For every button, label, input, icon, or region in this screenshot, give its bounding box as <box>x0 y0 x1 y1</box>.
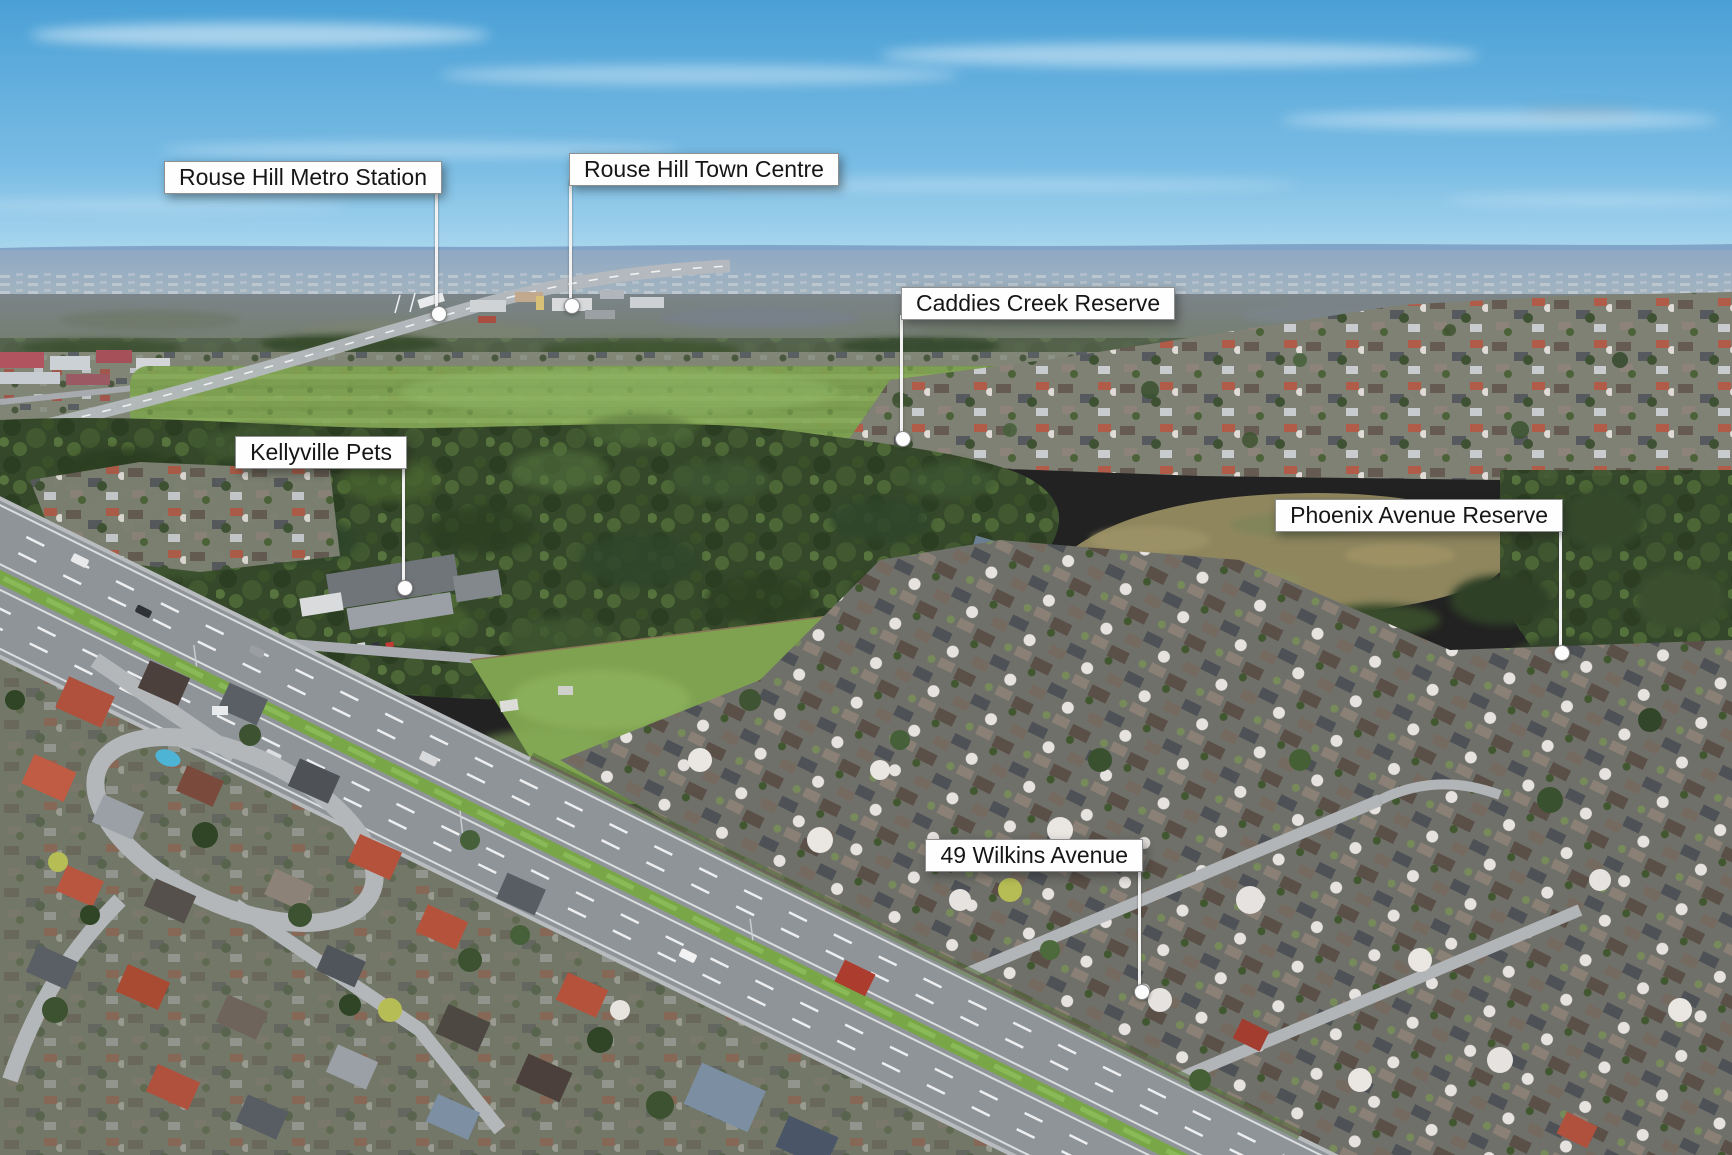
label-kellyville-pets: Kellyville Pets <box>235 436 407 469</box>
leader-line <box>900 315 903 438</box>
leader-dot <box>895 431 911 447</box>
aerial-photo: Rouse Hill Metro Station Rouse Hill Town… <box>0 0 1732 1155</box>
caravan <box>212 706 228 715</box>
label-caddies-creek-reserve: Caddies Creek Reserve <box>901 287 1175 320</box>
leader-line <box>1138 867 1141 991</box>
yellow-tree <box>378 998 402 1022</box>
leader-line <box>402 462 405 587</box>
leader-dot <box>1134 984 1150 1000</box>
distant-city-flecks <box>0 270 1732 294</box>
field-highlight <box>400 368 840 416</box>
leader-line <box>569 181 572 305</box>
shed <box>558 686 573 695</box>
label-49-wilkins-avenue: 49 Wilkins Avenue <box>925 839 1143 872</box>
leader-dot <box>1554 645 1570 661</box>
leader-dot <box>564 298 580 314</box>
yellow-tree <box>48 852 68 872</box>
label-phoenix-avenue-reserve: Phoenix Avenue Reserve <box>1275 499 1563 532</box>
blossom-tree <box>610 1000 630 1020</box>
leader-line <box>1559 526 1562 652</box>
leader-line <box>435 190 438 313</box>
leader-dot <box>431 306 447 322</box>
label-rouse-hill-metro-station: Rouse Hill Metro Station <box>164 161 442 194</box>
yellow-tree <box>998 878 1022 902</box>
label-rouse-hill-town-centre: Rouse Hill Town Centre <box>569 153 839 186</box>
leader-dot <box>397 580 413 596</box>
